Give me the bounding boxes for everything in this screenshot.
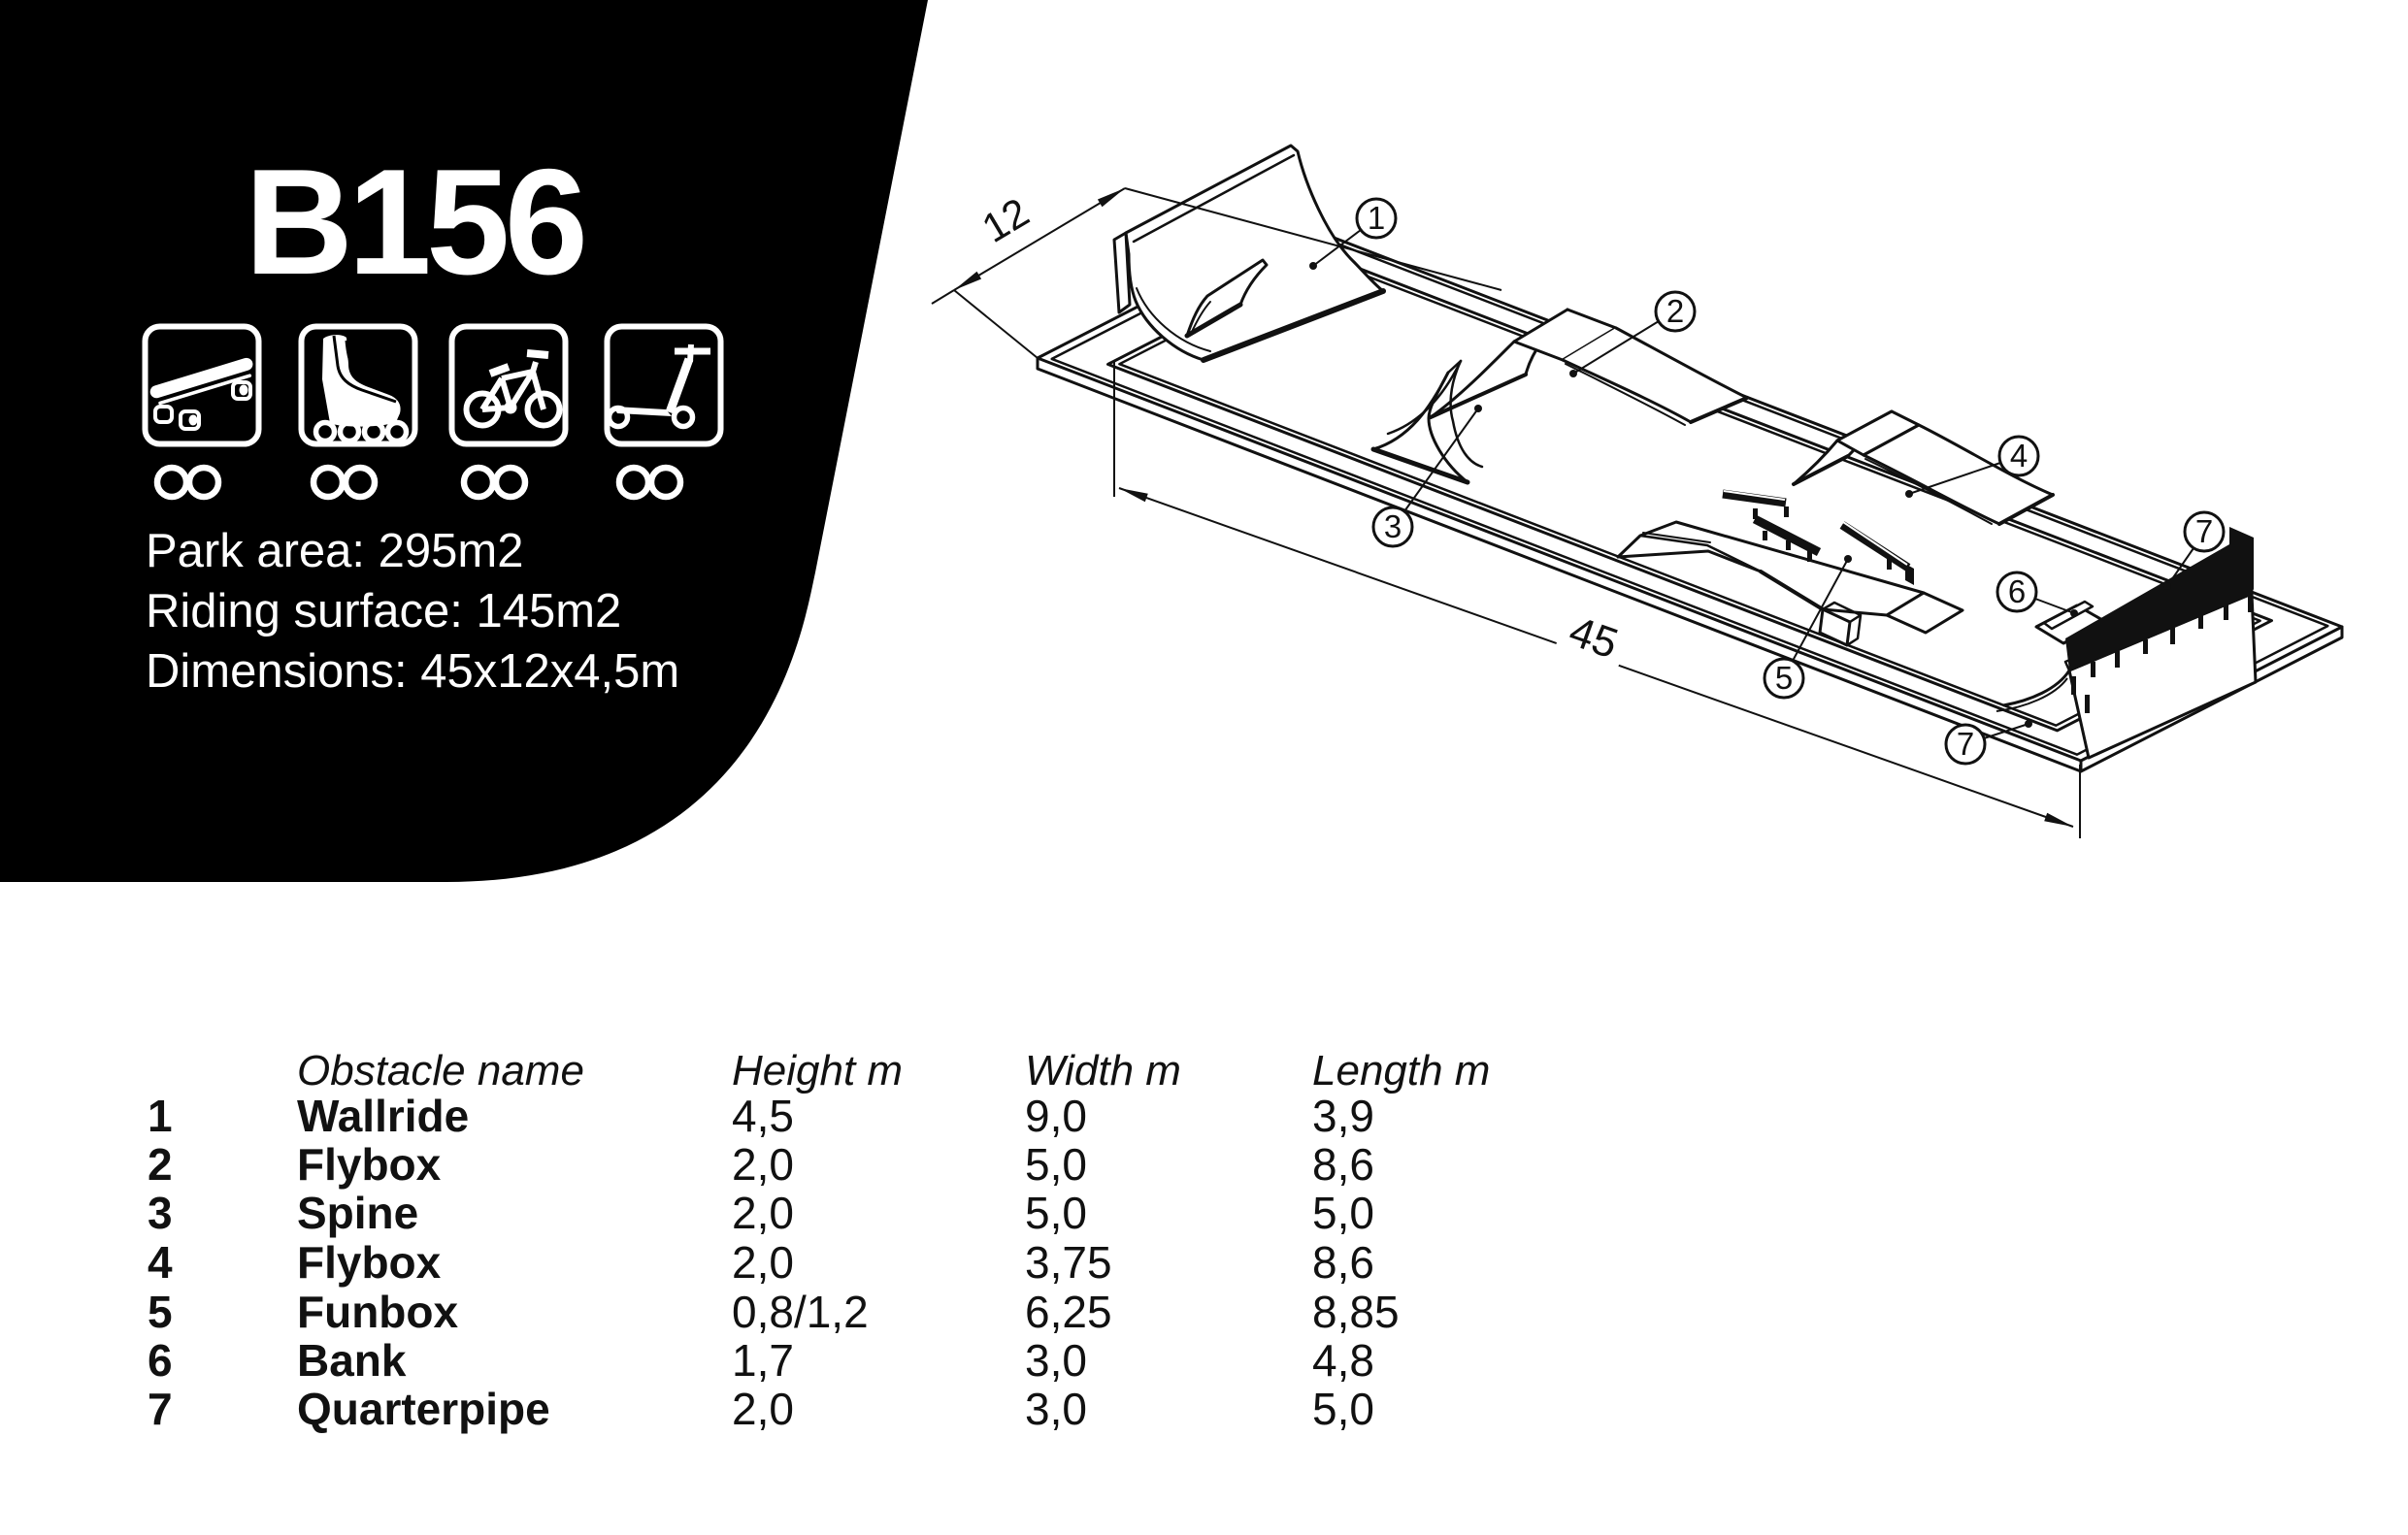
- svg-text:3,0: 3,0: [1025, 1384, 1087, 1434]
- svg-text:2,0: 2,0: [732, 1237, 794, 1288]
- svg-text:Bank: Bank: [297, 1335, 407, 1386]
- svg-text:7: 7: [148, 1384, 173, 1434]
- svg-text:1: 1: [148, 1091, 173, 1141]
- svg-text:Flybox: Flybox: [297, 1237, 442, 1288]
- svg-text:3,75: 3,75: [1025, 1237, 1112, 1288]
- svg-text:Spine: Spine: [297, 1188, 418, 1238]
- svg-text:2,0: 2,0: [732, 1188, 794, 1238]
- svg-text:12: 12: [974, 189, 1037, 251]
- svg-text:3: 3: [148, 1188, 173, 1238]
- svg-text:8,6: 8,6: [1312, 1237, 1374, 1288]
- svg-text:4: 4: [148, 1237, 173, 1288]
- svg-text:Width m: Width m: [1025, 1047, 1181, 1094]
- svg-text:B156: B156: [245, 138, 583, 306]
- svg-text:6,25: 6,25: [1025, 1287, 1112, 1337]
- svg-text:Length m: Length m: [1312, 1047, 1490, 1094]
- svg-text:1,7: 1,7: [732, 1335, 794, 1386]
- svg-text:2: 2: [148, 1139, 173, 1190]
- svg-text:2,0: 2,0: [732, 1139, 794, 1190]
- svg-text:Height m: Height m: [732, 1047, 903, 1094]
- svg-text:0,8/1,2: 0,8/1,2: [732, 1287, 869, 1337]
- svg-text:2,0: 2,0: [732, 1384, 794, 1434]
- svg-text:Quarterpipe: Quarterpipe: [297, 1384, 550, 1434]
- svg-text:7: 7: [1957, 726, 1974, 762]
- svg-text:3,0: 3,0: [1025, 1335, 1087, 1386]
- svg-text:3,9: 3,9: [1312, 1091, 1374, 1141]
- svg-text:4: 4: [2010, 438, 2028, 474]
- svg-text:9,0: 9,0: [1025, 1091, 1087, 1141]
- svg-text:5,0: 5,0: [1312, 1188, 1374, 1238]
- svg-text:8,85: 8,85: [1312, 1287, 1400, 1337]
- svg-text:5: 5: [148, 1287, 173, 1337]
- svg-text:4,5: 4,5: [732, 1091, 794, 1141]
- svg-text:3: 3: [1384, 508, 1402, 544]
- svg-text:5,0: 5,0: [1312, 1384, 1374, 1434]
- svg-text:6: 6: [2008, 573, 2026, 609]
- svg-text:5: 5: [1775, 660, 1793, 696]
- svg-text:4,8: 4,8: [1312, 1335, 1374, 1386]
- svg-text:Park area: 295m2: Park area: 295m2: [146, 525, 524, 577]
- svg-text:Flybox: Flybox: [297, 1139, 442, 1190]
- svg-text:Wallride: Wallride: [297, 1091, 469, 1141]
- svg-text:7: 7: [2195, 513, 2213, 549]
- svg-text:Riding surface: 145m2: Riding surface: 145m2: [146, 585, 621, 637]
- svg-text:Dimensions: 45x12x4,5m: Dimensions: 45x12x4,5m: [146, 645, 679, 698]
- svg-text:6: 6: [148, 1335, 173, 1386]
- svg-text:1: 1: [1368, 200, 1385, 236]
- svg-text:Obstacle name: Obstacle name: [297, 1047, 584, 1094]
- svg-text:8,6: 8,6: [1312, 1139, 1374, 1190]
- svg-text:Funbox: Funbox: [297, 1287, 458, 1337]
- svg-text:2: 2: [1666, 293, 1684, 329]
- svg-text:5,0: 5,0: [1025, 1188, 1087, 1238]
- svg-text:5,0: 5,0: [1025, 1139, 1087, 1190]
